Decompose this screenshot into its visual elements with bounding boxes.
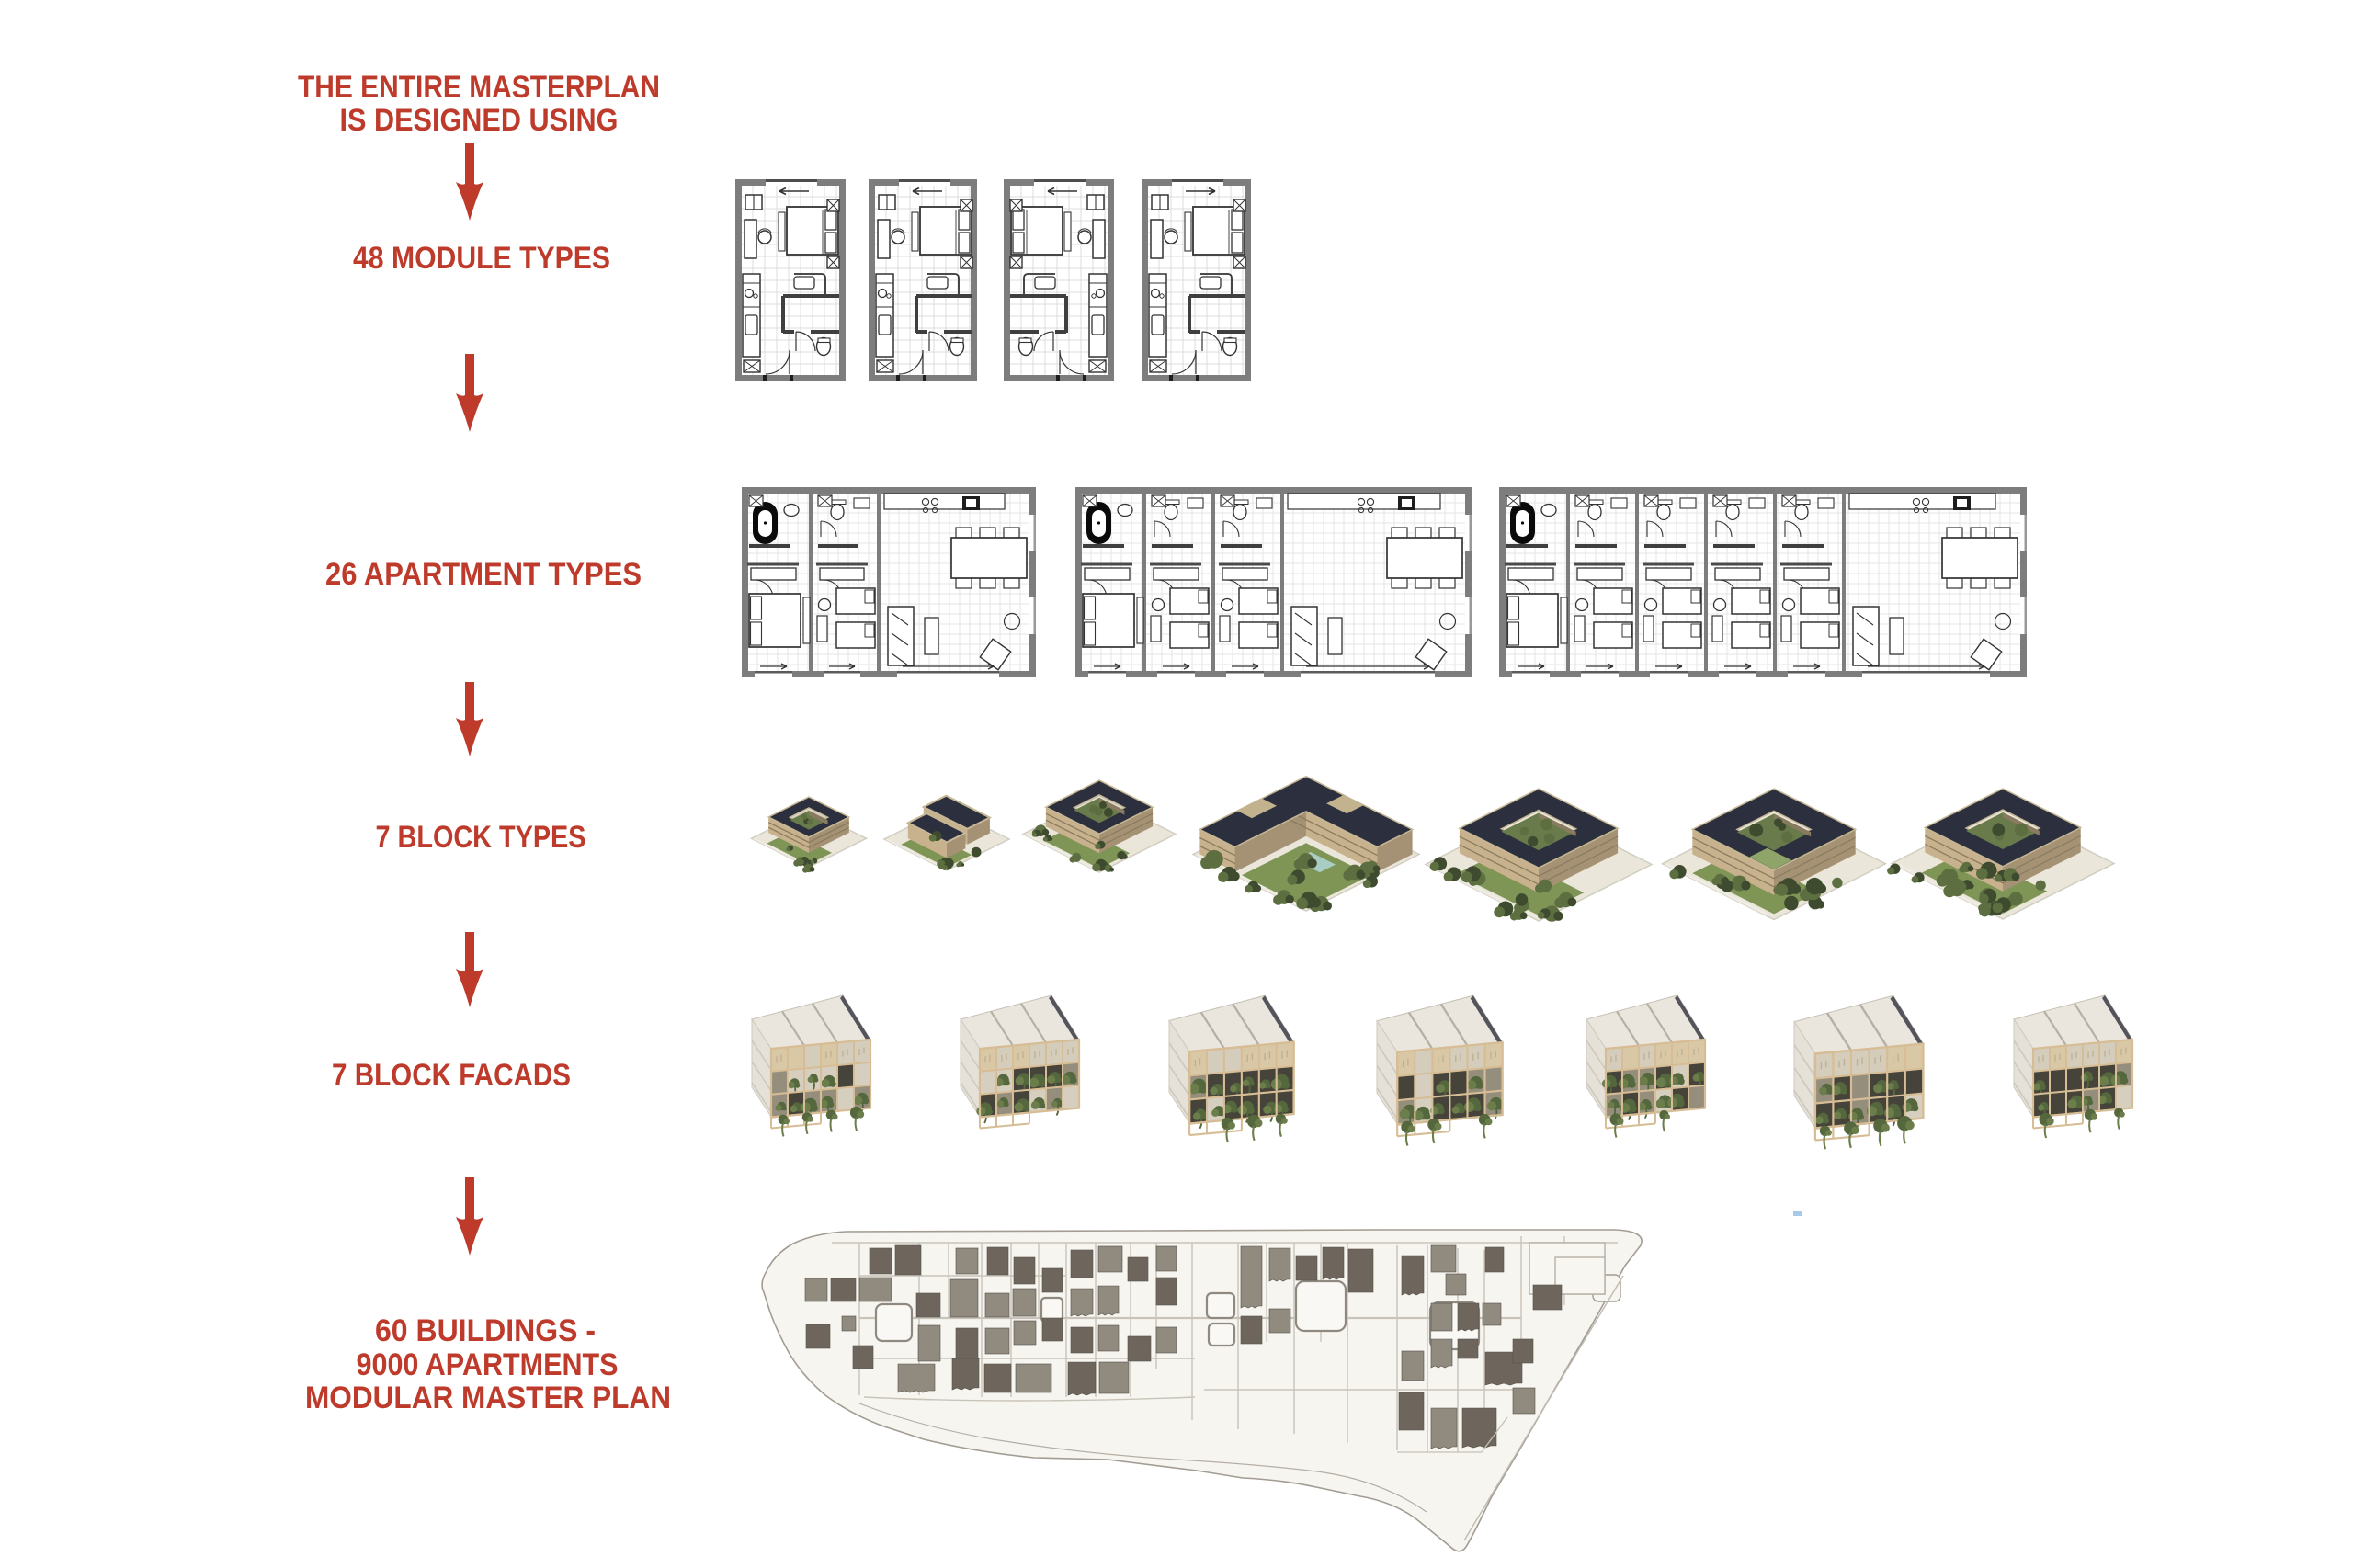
svg-text:7 BLOCK FACADS: 7 BLOCK FACADS (332, 1058, 571, 1093)
svg-text:7 BLOCK TYPES: 7 BLOCK TYPES (376, 820, 586, 855)
svg-text:60 BUILDINGS -: 60 BUILDINGS - (375, 1313, 596, 1348)
svg-text:MODULAR MASTER PLAN: MODULAR MASTER PLAN (305, 1381, 671, 1415)
svg-text:48 MODULE TYPES: 48 MODULE TYPES (353, 241, 610, 276)
svg-text:THE ENTIRE MASTERPLAN: THE ENTIRE MASTERPLAN (298, 70, 660, 105)
svg-text:26 APARTMENT TYPES: 26 APARTMENT TYPES (325, 557, 642, 592)
svg-text:9000 APARTMENTS: 9000 APARTMENTS (357, 1347, 619, 1382)
svg-text:IS DESIGNED USING: IS DESIGNED USING (340, 103, 619, 138)
